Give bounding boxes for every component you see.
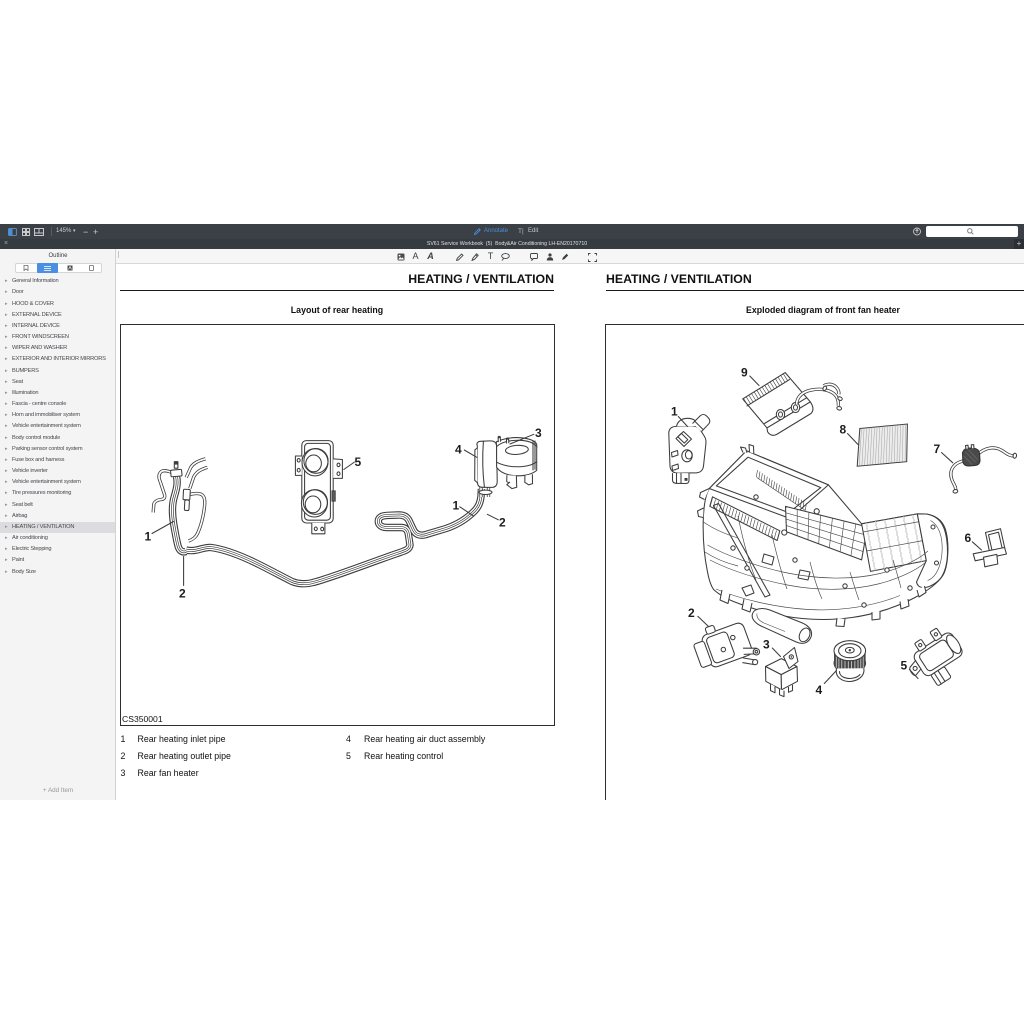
svg-text:2: 2 [688, 606, 695, 620]
svg-text:5: 5 [355, 455, 362, 469]
svg-text:4: 4 [816, 683, 823, 697]
svg-text:1: 1 [453, 499, 460, 513]
svg-text:5: 5 [901, 659, 908, 673]
svg-text:8: 8 [840, 423, 847, 437]
svg-text:1: 1 [145, 530, 152, 544]
svg-text:7: 7 [934, 442, 941, 456]
svg-text:6: 6 [965, 531, 972, 545]
svg-text:2: 2 [179, 587, 186, 601]
svg-text:4: 4 [455, 443, 462, 457]
svg-text:3: 3 [535, 426, 542, 440]
svg-text:2: 2 [499, 516, 506, 530]
svg-text:9: 9 [741, 366, 748, 380]
svg-text:3: 3 [763, 638, 770, 652]
svg-text:1: 1 [671, 405, 678, 419]
